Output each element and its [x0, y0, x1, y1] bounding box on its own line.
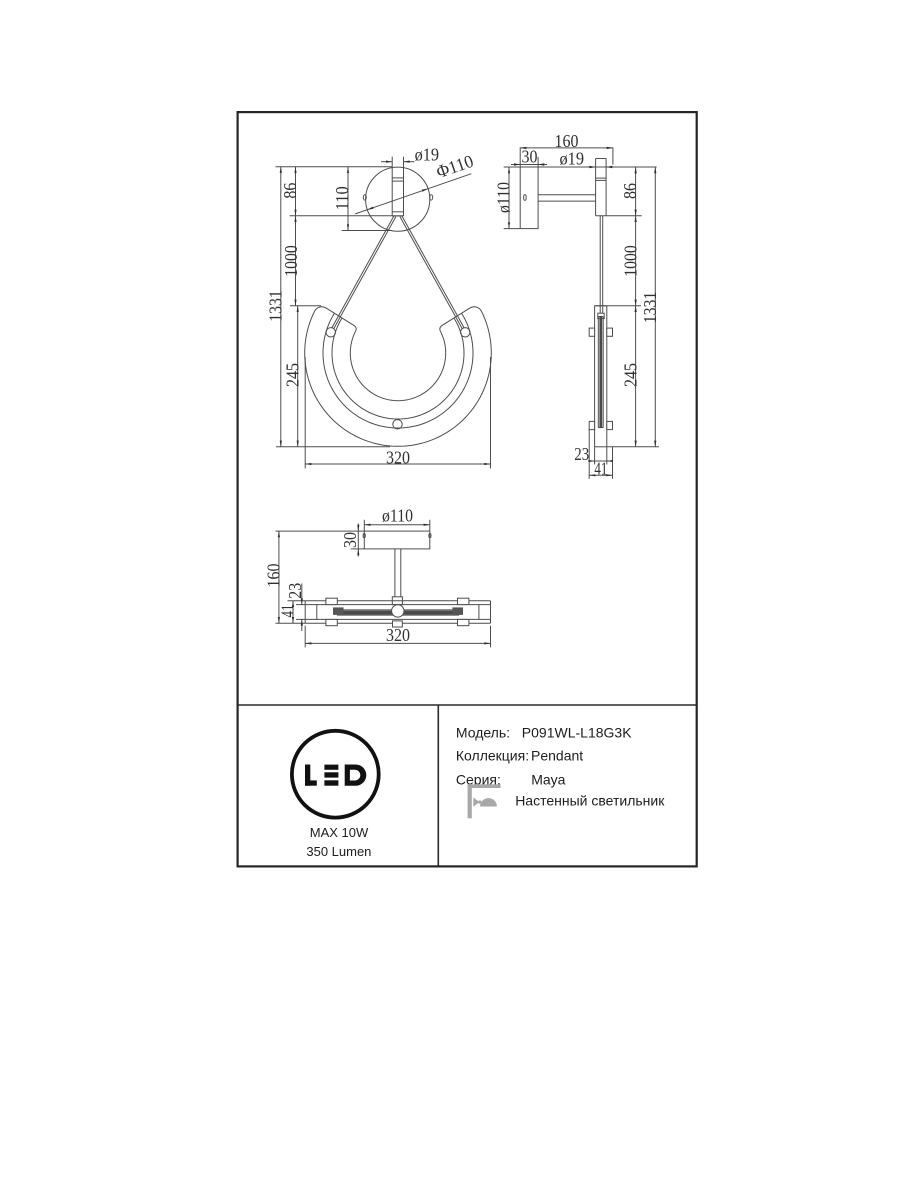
- svg-text:23: 23: [574, 444, 589, 464]
- svg-text:30: 30: [522, 146, 538, 166]
- svg-text:1000: 1000: [281, 245, 301, 277]
- svg-text:ø110: ø110: [382, 506, 413, 526]
- svg-text:350 Lumen: 350 Lumen: [306, 844, 371, 859]
- svg-text:1331: 1331: [266, 290, 286, 322]
- svg-text:23: 23: [285, 583, 305, 599]
- svg-text:320: 320: [386, 447, 410, 467]
- svg-text:245: 245: [620, 363, 640, 387]
- svg-text:30: 30: [340, 532, 360, 548]
- svg-text:86: 86: [620, 183, 640, 199]
- svg-text:ø19: ø19: [415, 144, 440, 164]
- svg-text:1331: 1331: [640, 292, 660, 324]
- svg-text:110: 110: [332, 186, 352, 210]
- svg-text:41: 41: [594, 458, 607, 478]
- svg-text:Pendant: Pendant: [531, 748, 583, 764]
- svg-text:P091WL-L18G3K: P091WL-L18G3K: [522, 725, 632, 741]
- svg-text:1000: 1000: [620, 245, 640, 277]
- svg-text:ø19: ø19: [560, 149, 585, 169]
- svg-text:320: 320: [386, 625, 410, 645]
- svg-text:41: 41: [277, 605, 297, 618]
- svg-text:Модель:: Модель:: [456, 725, 510, 741]
- svg-text:Коллекция:: Коллекция:: [456, 748, 529, 764]
- svg-text:MAX 10W: MAX 10W: [310, 825, 369, 840]
- svg-text:Maya: Maya: [531, 772, 565, 788]
- svg-text:86: 86: [280, 183, 300, 199]
- svg-text:Настенный светильник: Настенный светильник: [515, 793, 665, 809]
- svg-text:245: 245: [282, 363, 302, 387]
- svg-text:160: 160: [263, 564, 283, 588]
- svg-text:ø110: ø110: [494, 182, 514, 213]
